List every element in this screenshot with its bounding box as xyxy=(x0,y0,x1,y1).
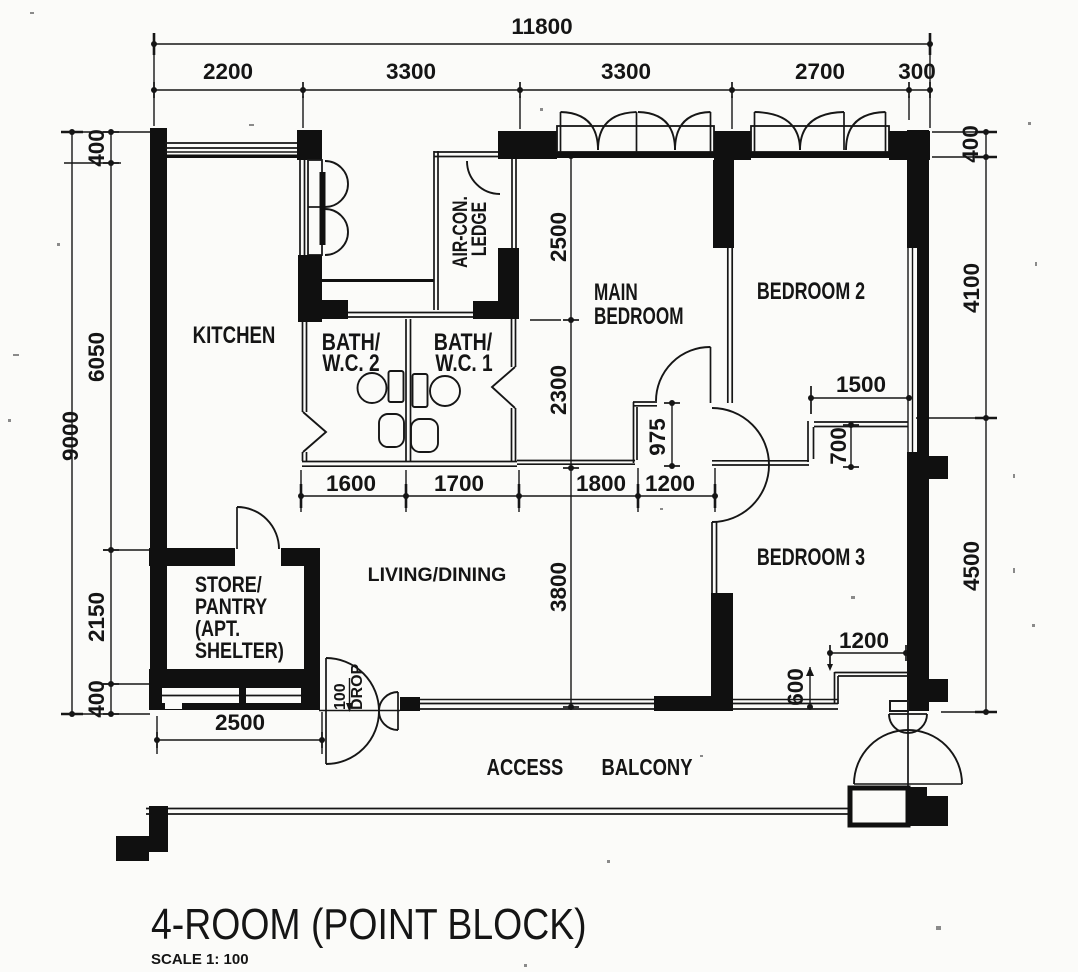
svg-text:6050: 6050 xyxy=(84,332,109,382)
svg-text:(APT.: (APT. xyxy=(195,617,240,641)
svg-text:SCALE 1: 100: SCALE 1: 100 xyxy=(151,951,249,968)
svg-text:KITCHEN: KITCHEN xyxy=(193,320,276,348)
svg-text:MAIN: MAIN xyxy=(594,279,638,306)
svg-text:BALCONY: BALCONY xyxy=(602,755,693,780)
svg-text:W.C. 1: W.C. 1 xyxy=(435,349,492,377)
svg-text:3300: 3300 xyxy=(601,59,651,84)
svg-text:ACCESS: ACCESS xyxy=(487,755,564,780)
svg-text:LEDGE: LEDGE xyxy=(467,202,491,256)
svg-text:1800: 1800 xyxy=(576,471,626,496)
svg-text:1200: 1200 xyxy=(645,471,695,496)
svg-text:9000: 9000 xyxy=(58,411,83,461)
svg-text:2500: 2500 xyxy=(215,710,265,735)
svg-text:2700: 2700 xyxy=(795,59,845,84)
svg-text:1700: 1700 xyxy=(434,471,484,496)
svg-text:BEDROOM 3: BEDROOM 3 xyxy=(757,543,865,570)
svg-text:PANTRY: PANTRY xyxy=(195,595,268,619)
svg-text:3300: 3300 xyxy=(386,59,436,84)
svg-text:3800: 3800 xyxy=(546,562,571,612)
svg-text:1600: 1600 xyxy=(326,471,376,496)
svg-text:BEDROOM: BEDROOM xyxy=(594,303,683,330)
svg-text:4500: 4500 xyxy=(959,541,984,591)
svg-text:400: 400 xyxy=(84,680,109,718)
svg-text:700: 700 xyxy=(826,427,851,465)
svg-text:975: 975 xyxy=(645,418,670,456)
svg-text:LIVING/DINING: LIVING/DINING xyxy=(368,564,507,586)
svg-text:100: 100 xyxy=(332,683,349,710)
svg-text:4-ROOM (POINT BLOCK): 4-ROOM (POINT BLOCK) xyxy=(151,899,587,949)
svg-text:2150: 2150 xyxy=(84,592,109,642)
svg-text:BEDROOM 2: BEDROOM 2 xyxy=(757,277,865,304)
svg-text:11800: 11800 xyxy=(511,14,572,39)
svg-text:STORE/: STORE/ xyxy=(195,573,262,597)
svg-text:2200: 2200 xyxy=(203,59,253,84)
svg-text:1200: 1200 xyxy=(839,628,889,653)
svg-text:2300: 2300 xyxy=(546,365,571,415)
svg-text:SHELTER): SHELTER) xyxy=(195,639,284,663)
svg-text:4100: 4100 xyxy=(959,263,984,313)
svg-text:W.C. 2: W.C. 2 xyxy=(322,349,379,377)
svg-text:1500: 1500 xyxy=(836,372,886,397)
svg-text:400: 400 xyxy=(84,129,109,167)
svg-text:2500: 2500 xyxy=(546,212,571,262)
